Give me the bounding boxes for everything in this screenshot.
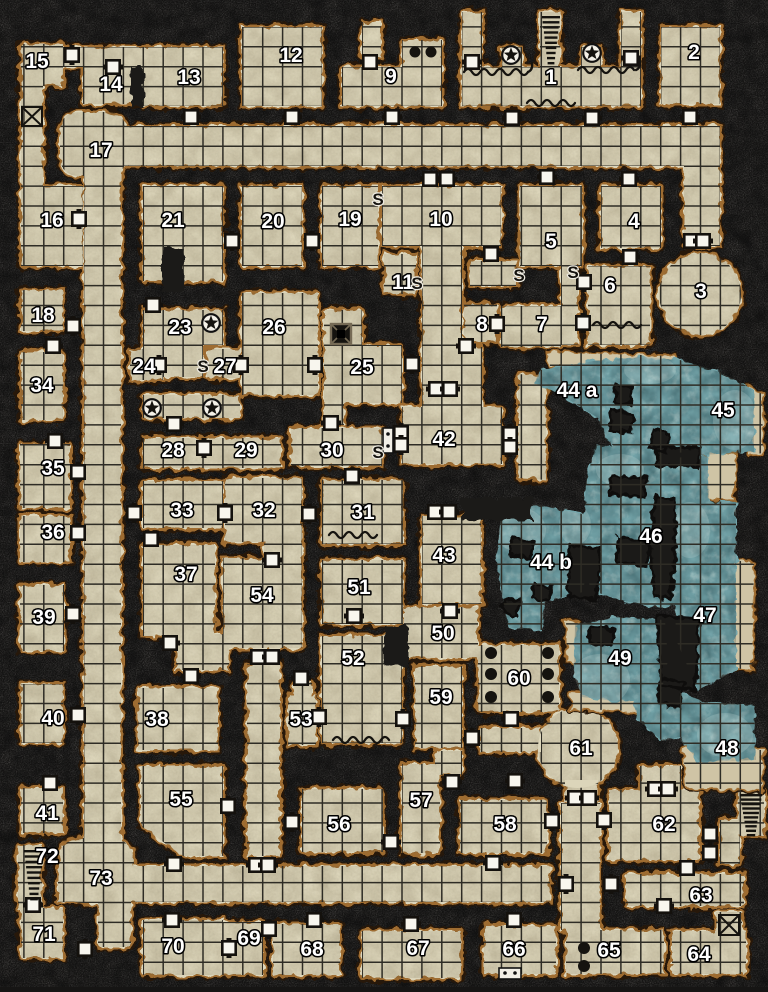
svg-text:26: 26 (262, 316, 285, 339)
svg-text:39: 39 (32, 606, 55, 629)
svg-text:33: 33 (170, 499, 193, 522)
svg-text:58: 58 (493, 813, 517, 836)
svg-text:18: 18 (31, 304, 55, 327)
svg-text:14: 14 (99, 73, 123, 96)
svg-text:1: 1 (545, 66, 557, 89)
svg-text:46: 46 (639, 525, 662, 548)
svg-text:65: 65 (597, 939, 621, 962)
svg-text:59: 59 (429, 686, 452, 709)
svg-text:13: 13 (177, 66, 200, 89)
svg-text:38: 38 (145, 708, 169, 731)
svg-text:30: 30 (320, 439, 343, 462)
svg-text:15: 15 (25, 50, 49, 73)
svg-text:54: 54 (250, 584, 274, 607)
svg-text:S: S (513, 266, 524, 285)
svg-text:9: 9 (385, 65, 397, 88)
svg-text:4: 4 (628, 210, 640, 233)
svg-text:53: 53 (289, 708, 312, 731)
svg-text:20: 20 (261, 210, 284, 233)
svg-text:49: 49 (608, 647, 631, 670)
svg-text:55: 55 (169, 788, 193, 811)
svg-text:70: 70 (161, 935, 184, 958)
svg-text:21: 21 (161, 209, 185, 232)
svg-text:17: 17 (89, 139, 112, 162)
svg-text:57: 57 (409, 789, 432, 812)
svg-text:8: 8 (476, 313, 488, 336)
svg-text:41: 41 (35, 802, 59, 825)
svg-text:24: 24 (132, 355, 156, 378)
svg-text:45: 45 (711, 399, 735, 422)
svg-text:44 b: 44 b (530, 551, 572, 574)
svg-text:61: 61 (569, 737, 593, 760)
svg-text:25: 25 (350, 356, 374, 379)
svg-text:7: 7 (536, 313, 548, 336)
svg-text:34: 34 (30, 374, 54, 397)
svg-text:23: 23 (168, 316, 191, 339)
svg-text:S: S (372, 443, 383, 462)
svg-text:66: 66 (502, 938, 525, 961)
svg-text:71: 71 (32, 923, 56, 946)
svg-text:28: 28 (161, 439, 185, 462)
svg-text:40: 40 (41, 707, 64, 730)
svg-text:S: S (372, 190, 383, 209)
svg-text:63: 63 (689, 884, 712, 907)
svg-text:2: 2 (688, 41, 700, 64)
svg-text:19: 19 (338, 208, 361, 231)
svg-text:6: 6 (604, 274, 616, 297)
svg-text:27: 27 (213, 355, 236, 378)
svg-text:69: 69 (237, 927, 260, 950)
svg-text:S: S (197, 357, 208, 376)
svg-text:43: 43 (432, 544, 455, 567)
svg-text:32: 32 (252, 499, 275, 522)
svg-text:48: 48 (715, 737, 739, 760)
svg-text:44 a: 44 a (557, 379, 598, 402)
svg-text:37: 37 (174, 563, 197, 586)
svg-text:72: 72 (35, 845, 58, 868)
svg-text:29: 29 (234, 439, 257, 462)
svg-text:62: 62 (652, 813, 675, 836)
svg-text:64: 64 (687, 943, 711, 966)
svg-text:36: 36 (41, 521, 64, 544)
svg-text:51: 51 (347, 576, 371, 599)
svg-text:60: 60 (507, 667, 530, 690)
svg-text:3: 3 (695, 280, 707, 303)
svg-text:67: 67 (406, 937, 429, 960)
svg-text:47: 47 (693, 604, 716, 627)
svg-text:42: 42 (432, 428, 455, 451)
svg-text:S: S (567, 263, 578, 282)
svg-text:73: 73 (89, 867, 112, 890)
svg-text:12: 12 (279, 44, 302, 67)
svg-text:52: 52 (341, 647, 364, 670)
svg-text:31: 31 (351, 501, 375, 524)
svg-text:50: 50 (431, 622, 454, 645)
svg-text:56: 56 (327, 813, 350, 836)
svg-text:35: 35 (41, 457, 65, 480)
svg-text:16: 16 (40, 209, 63, 232)
svg-text:68: 68 (300, 938, 324, 961)
svg-text:10: 10 (429, 208, 452, 231)
svg-text:5: 5 (545, 230, 557, 253)
svg-text:S: S (411, 274, 422, 293)
